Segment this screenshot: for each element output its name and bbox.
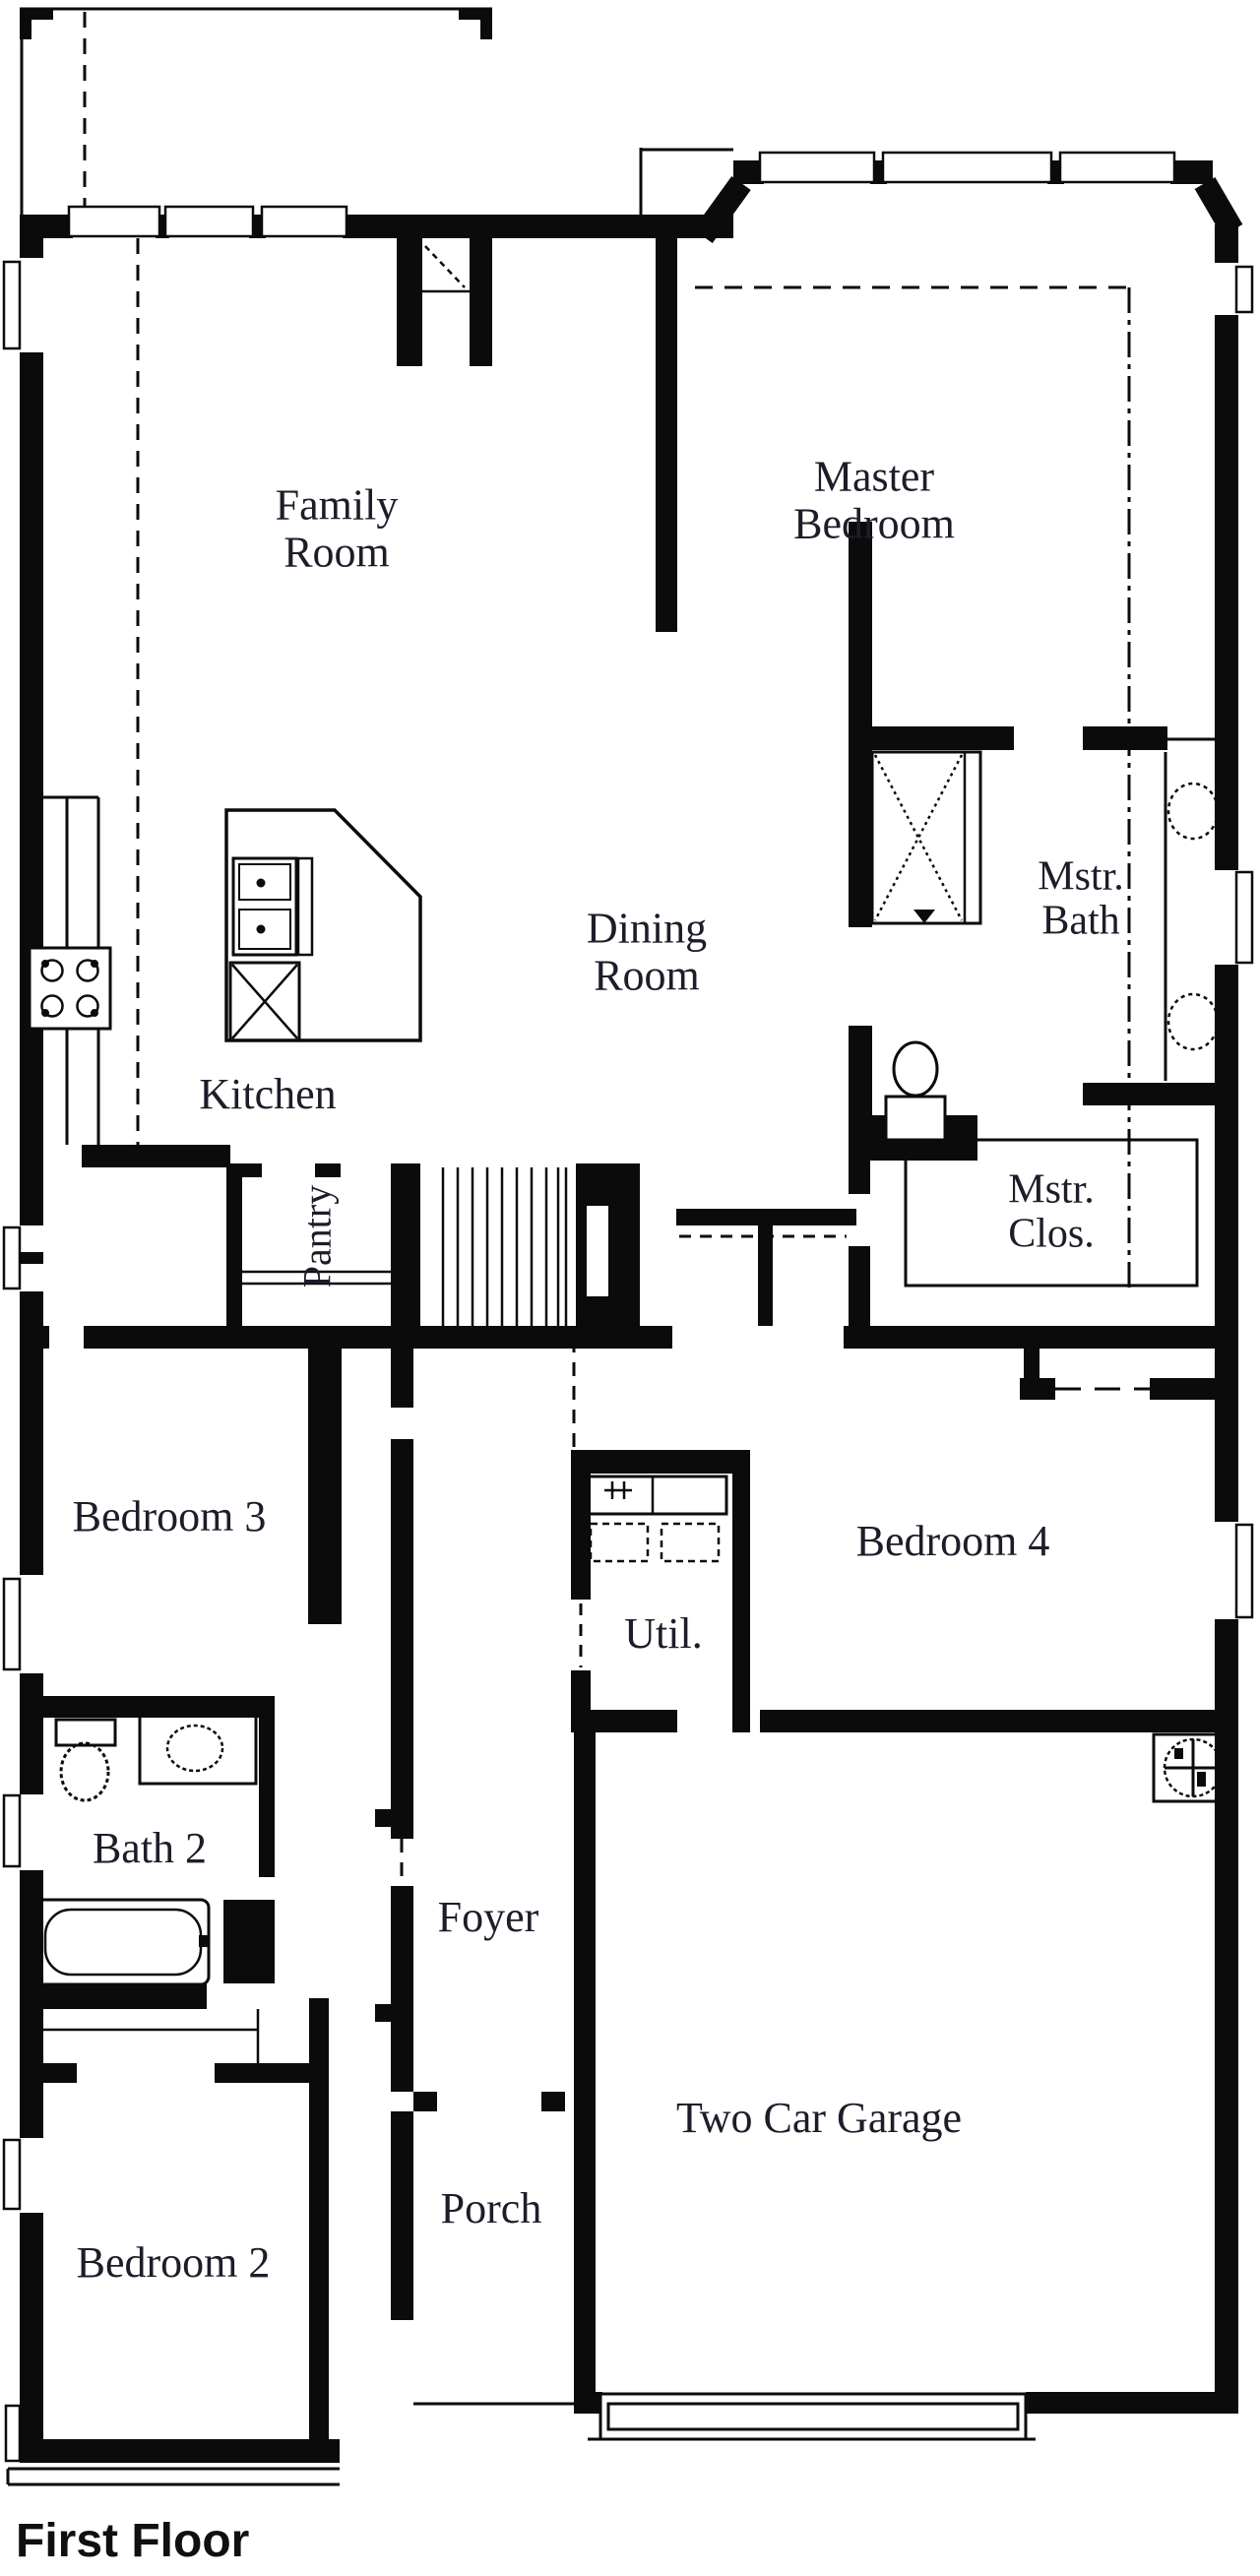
cooktop — [30, 948, 110, 1029]
bay-chamfers — [703, 183, 1232, 236]
room-label-utility: Util. — [624, 1610, 702, 1658]
double-vanity-sinks — [1165, 739, 1218, 1081]
room-label-garage: Two Car Garage — [676, 2095, 962, 2142]
interior-walls — [20, 238, 1238, 2463]
floor-plan: Family Room Master Bedroom Dining Room K… — [0, 0, 1260, 2576]
linen-shelf — [28, 2009, 258, 2063]
stair-core-notch — [587, 1206, 608, 1296]
room-label-master-bath: Mstr. Bath — [1038, 855, 1124, 945]
room-label-dining-room: Dining Room — [587, 905, 707, 998]
corner-fireplace — [422, 246, 470, 291]
bath2-toilet — [56, 1720, 115, 1800]
bathtub — [35, 1900, 209, 1984]
room-label-bedroom-2: Bedroom 2 — [77, 2239, 271, 2287]
room-label-porch: Porch — [441, 2185, 542, 2232]
room-label-bath-2: Bath 2 — [93, 1825, 207, 1872]
kitchen-island — [226, 810, 420, 1040]
bath2-sink — [140, 1716, 256, 1784]
room-label-bedroom-4: Bedroom 4 — [856, 1518, 1050, 1565]
plan-title: First Floor — [16, 2516, 249, 2567]
floor-plan-drawing — [0, 0, 1260, 2576]
stairs — [443, 1167, 566, 1326]
room-label-bedroom-3: Bedroom 3 — [73, 1493, 267, 1540]
room-label-master-bedroom: Master Bedroom — [793, 453, 955, 546]
room-label-pantry: Pantry — [295, 1185, 338, 1288]
room-label-foyer: Foyer — [438, 1894, 539, 1941]
room-label-master-closet: Mstr. Clos. — [1008, 1168, 1095, 1258]
garage-door — [588, 2394, 1036, 2439]
washer-dryer — [583, 1476, 726, 1561]
shower — [872, 752, 980, 923]
room-label-kitchen: Kitchen — [199, 1071, 336, 1118]
toilet — [886, 1042, 945, 1140]
room-label-family-room: Family Room — [276, 481, 399, 575]
covered-patio — [20, 8, 733, 217]
